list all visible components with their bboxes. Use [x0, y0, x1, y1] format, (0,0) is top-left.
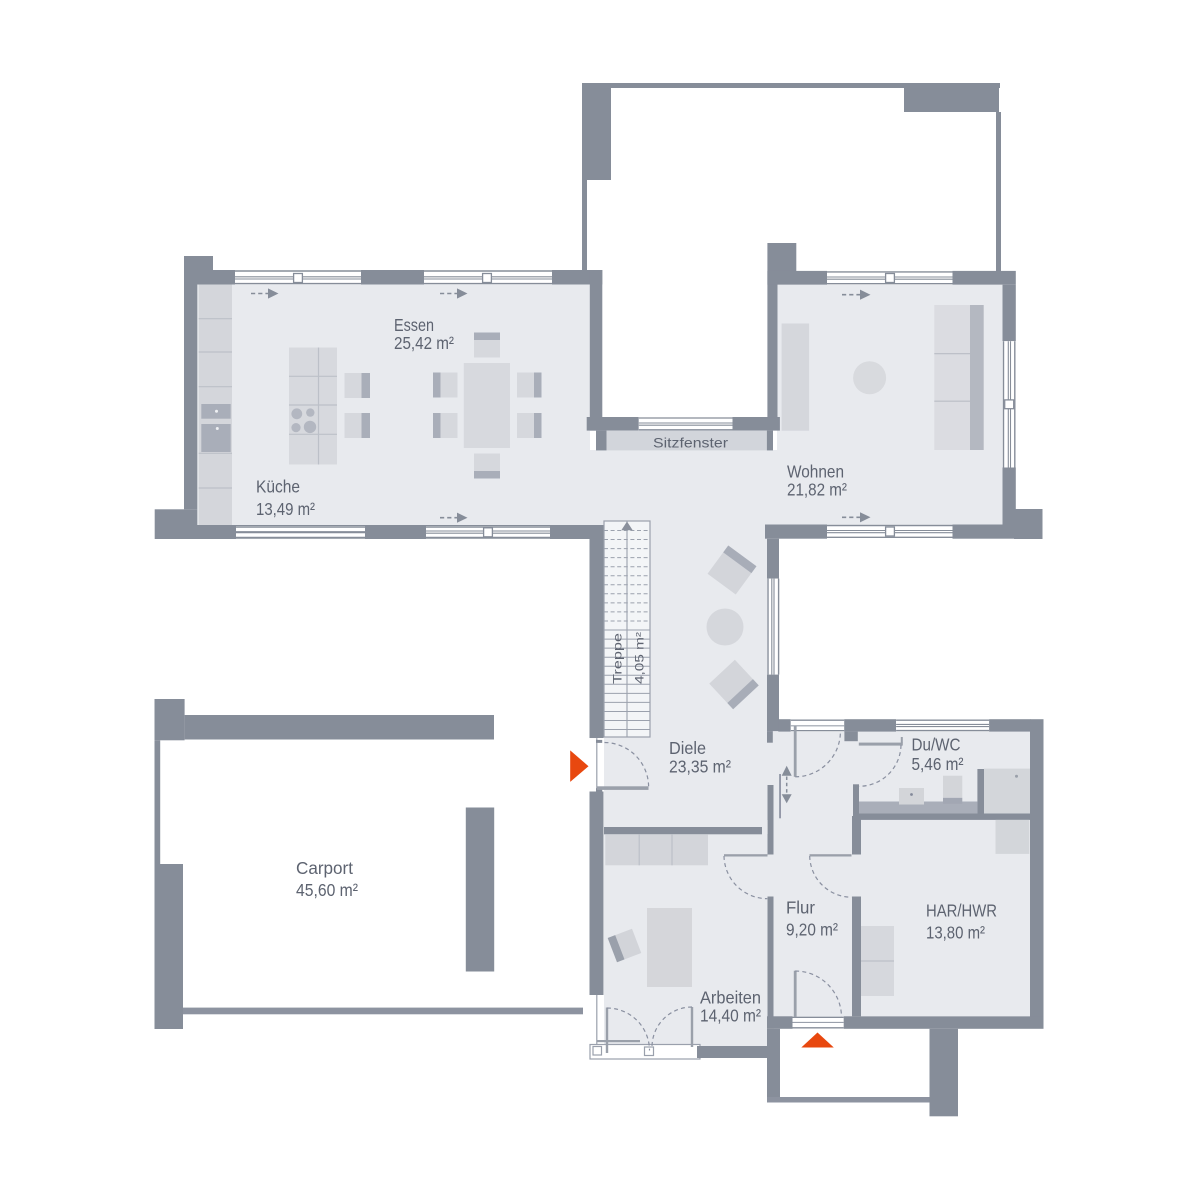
svg-text:Arbeiten: Arbeiten — [700, 988, 761, 1008]
svg-text:13,49 m²: 13,49 m² — [256, 499, 315, 519]
svg-text:Flur: Flur — [786, 898, 815, 918]
svg-text:4,05 m²: 4,05 m² — [635, 632, 647, 684]
svg-text:9,20 m²: 9,20 m² — [786, 920, 838, 940]
svg-text:45,60 m²: 45,60 m² — [296, 880, 358, 900]
svg-text:HAR/HWR: HAR/HWR — [926, 901, 997, 921]
svg-text:13,80 m²: 13,80 m² — [926, 923, 985, 943]
svg-text:Essen: Essen — [394, 315, 434, 335]
svg-text:25,42 m²: 25,42 m² — [394, 333, 454, 353]
svg-text:14,40 m²: 14,40 m² — [700, 1006, 761, 1026]
svg-text:Sitzfenster: Sitzfenster — [653, 435, 728, 451]
svg-text:21,82 m²: 21,82 m² — [787, 480, 847, 500]
svg-text:Carport: Carport — [296, 858, 353, 878]
svg-text:Wohnen: Wohnen — [787, 462, 844, 482]
svg-text:Diele: Diele — [669, 738, 706, 758]
svg-text:5,46 m²: 5,46 m² — [912, 754, 964, 774]
svg-text:Treppe: Treppe — [613, 633, 625, 684]
svg-text:23,35 m²: 23,35 m² — [669, 757, 731, 777]
svg-text:Du/WC: Du/WC — [912, 735, 961, 755]
svg-text:Küche: Küche — [256, 477, 300, 497]
